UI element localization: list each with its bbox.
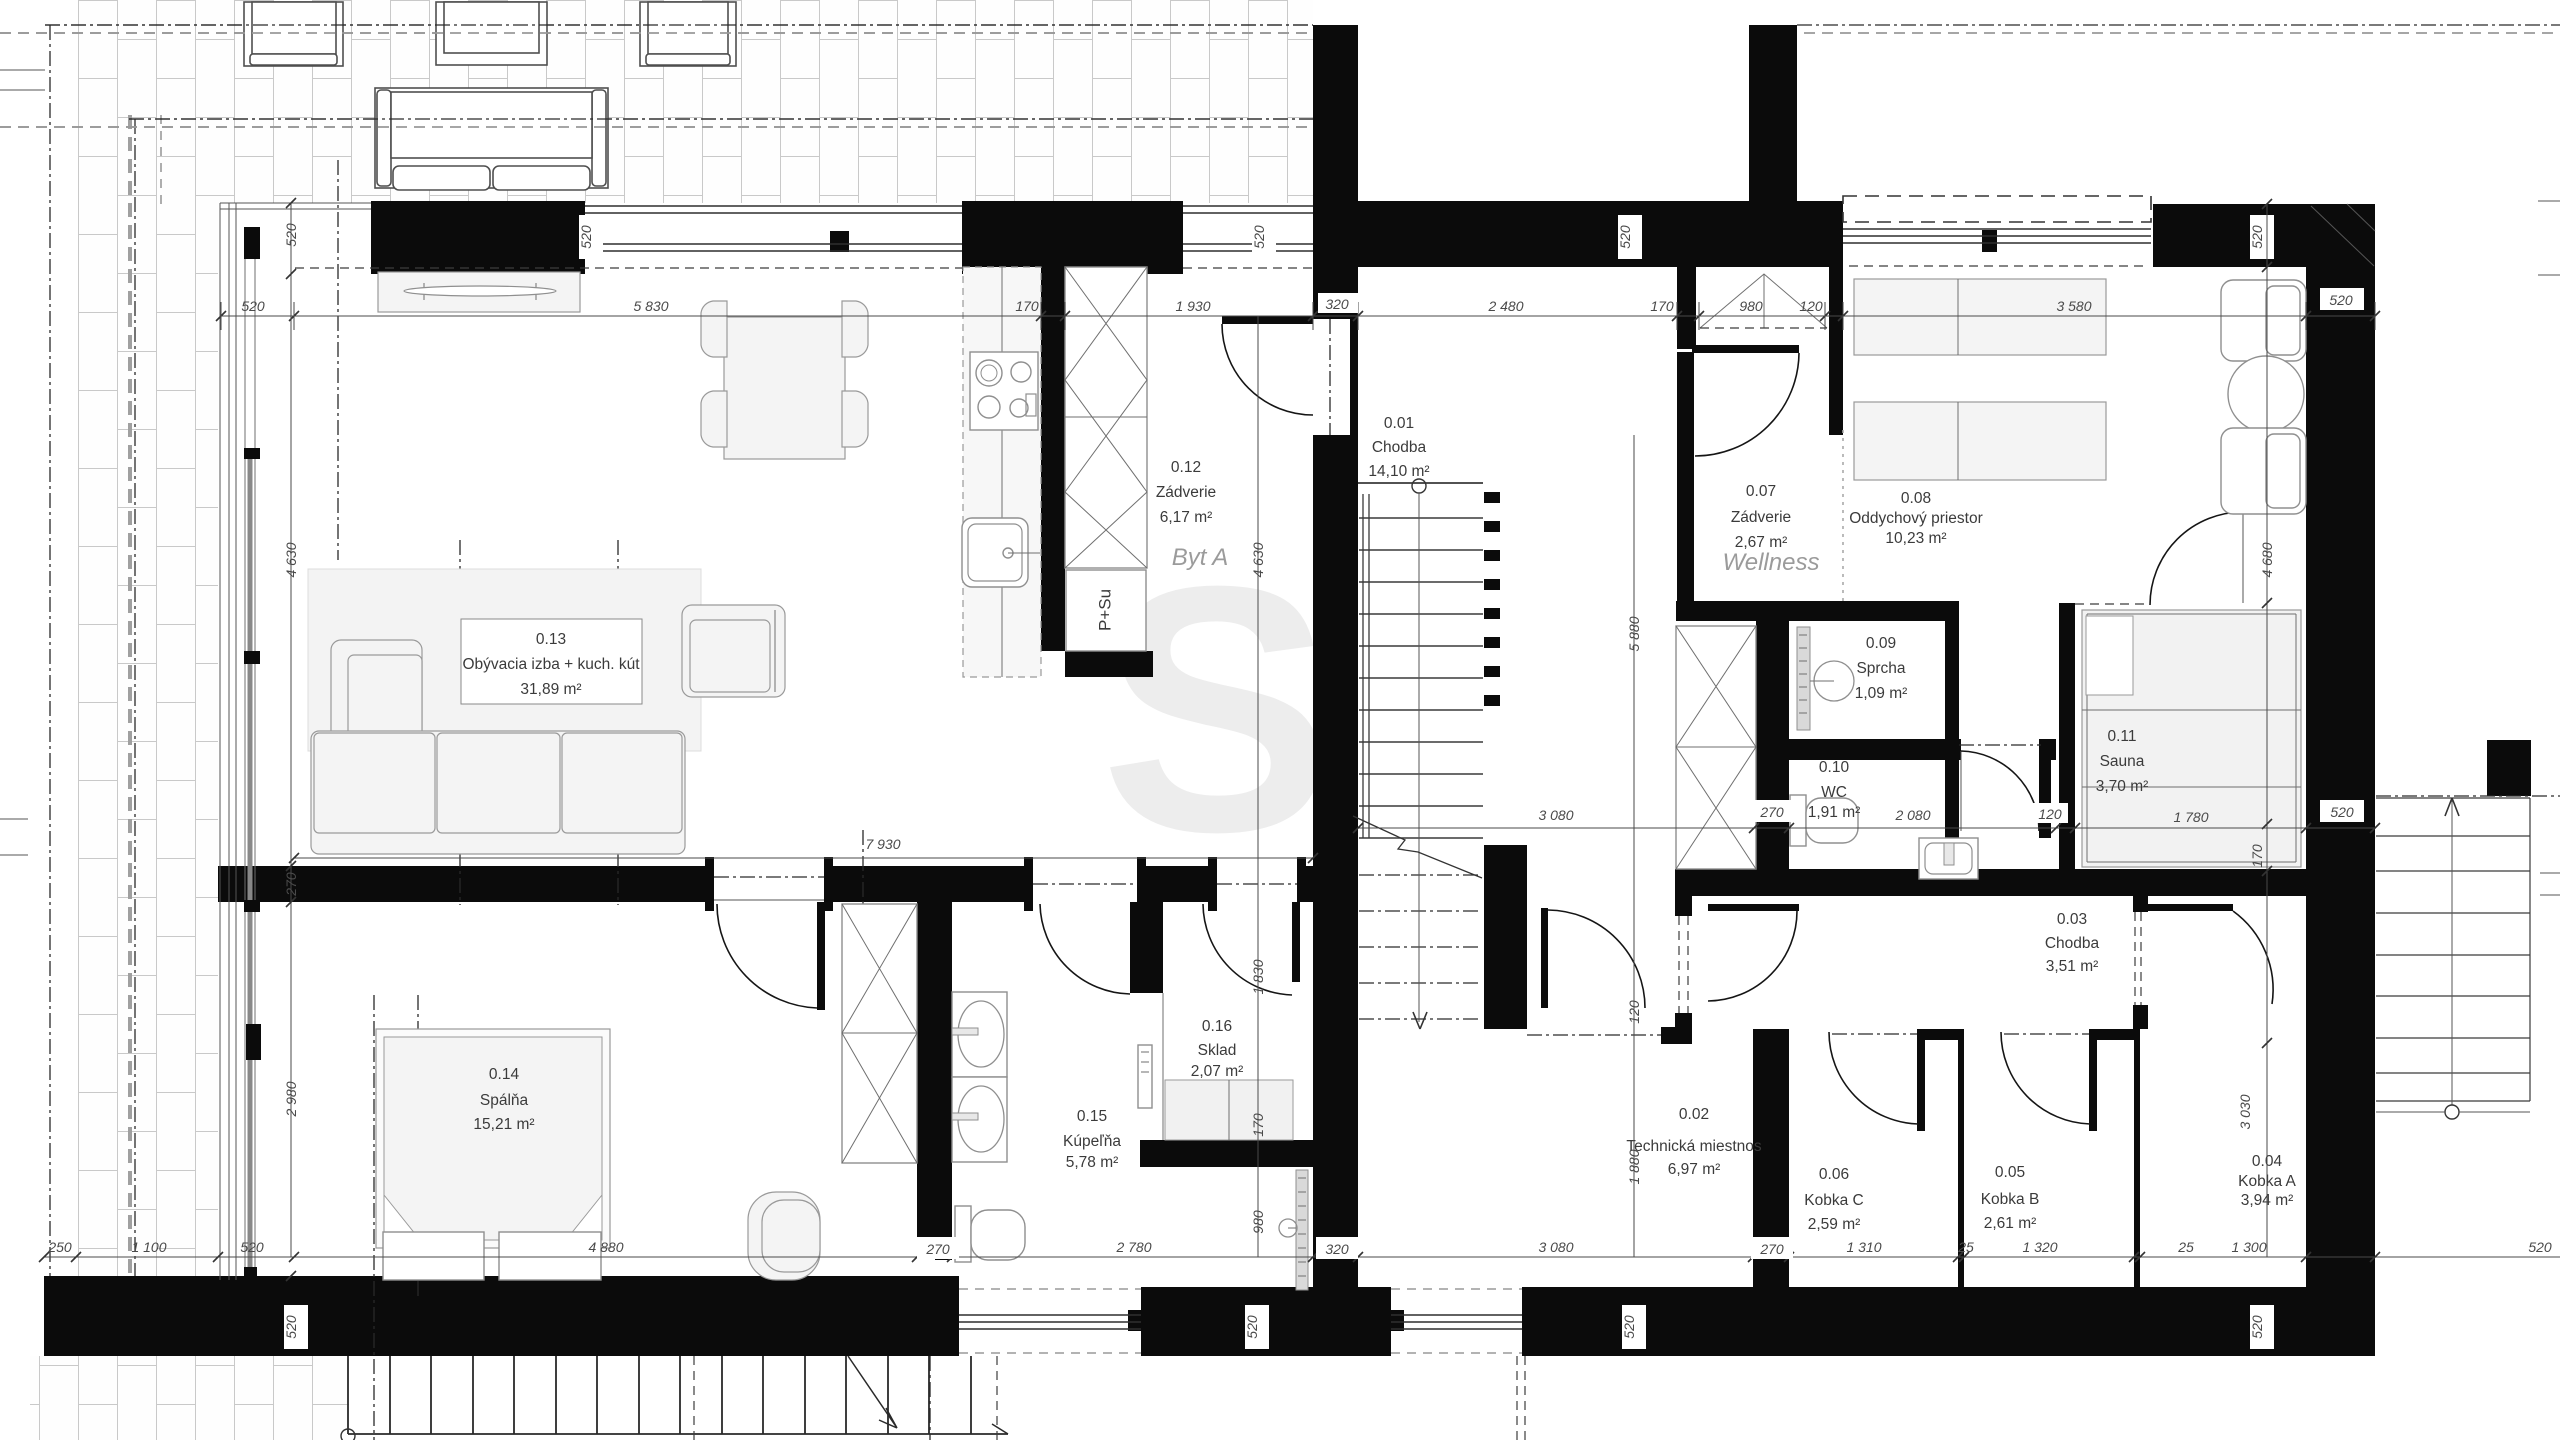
svg-text:1 880: 1 880 [1626, 1149, 1642, 1184]
svg-text:Oddychový priestor: Oddychový priestor [1849, 510, 1983, 527]
svg-text:2 780: 2 780 [1115, 1239, 1151, 1255]
svg-text:5,78 m²: 5,78 m² [1066, 1154, 1119, 1171]
svg-text:5 830: 5 830 [633, 298, 668, 314]
svg-text:270: 270 [925, 1241, 950, 1257]
svg-text:0.12: 0.12 [1171, 459, 1201, 476]
svg-text:520: 520 [1621, 1315, 1637, 1339]
svg-text:0.08: 0.08 [1901, 490, 1931, 507]
svg-text:2 080: 2 080 [1894, 807, 1930, 823]
svg-text:1 100: 1 100 [131, 1239, 166, 1255]
svg-text:170: 170 [1015, 298, 1039, 314]
svg-text:3 580: 3 580 [2056, 298, 2091, 314]
svg-text:1 930: 1 930 [1175, 298, 1210, 314]
svg-text:10,23 m²: 10,23 m² [1885, 530, 1946, 547]
svg-text:520: 520 [2249, 1315, 2265, 1339]
svg-text:P+Su: P+Su [1095, 589, 1114, 631]
svg-text:2,07 m²: 2,07 m² [1191, 1063, 1244, 1080]
svg-text:1,91 m²: 1,91 m² [1808, 804, 1861, 821]
svg-text:3 080: 3 080 [1538, 1239, 1573, 1255]
svg-text:2,67 m²: 2,67 m² [1735, 534, 1788, 551]
svg-text:Kobka B: Kobka B [1981, 1191, 2040, 1208]
svg-text:Sprcha: Sprcha [1856, 660, 1905, 677]
svg-text:270: 270 [1759, 1241, 1784, 1257]
svg-text:0.13: 0.13 [536, 631, 566, 648]
svg-text:3,70 m²: 3,70 m² [2096, 778, 2149, 795]
svg-text:1 780: 1 780 [2173, 809, 2208, 825]
svg-text:1 300: 1 300 [2231, 1239, 2266, 1255]
svg-text:170: 170 [1250, 1113, 1266, 1137]
svg-text:980: 980 [1739, 298, 1763, 314]
svg-text:0.03: 0.03 [2057, 911, 2087, 928]
svg-text:Kúpeľňa: Kúpeľňa [1063, 1133, 1121, 1150]
svg-text:7 930: 7 930 [865, 836, 900, 852]
svg-text:Chodba: Chodba [2045, 935, 2100, 952]
svg-text:14,10 m²: 14,10 m² [1368, 463, 1429, 480]
svg-text:520: 520 [2330, 804, 2354, 820]
svg-text:Technická miestnos: Technická miestnos [1626, 1138, 1762, 1155]
svg-text:4 630: 4 630 [283, 542, 299, 577]
svg-text:120: 120 [1626, 1000, 1642, 1024]
svg-text:4 880: 4 880 [588, 1239, 623, 1255]
svg-text:2 480: 2 480 [1487, 298, 1523, 314]
svg-text:Zádverie: Zádverie [1731, 509, 1791, 526]
svg-text:Sklad: Sklad [1198, 1042, 1237, 1059]
svg-text:170: 170 [2249, 844, 2265, 868]
svg-text:320: 320 [1325, 1241, 1349, 1257]
svg-text:520: 520 [2249, 225, 2265, 249]
svg-text:1,09 m²: 1,09 m² [1855, 685, 1908, 702]
svg-text:0.07: 0.07 [1746, 483, 1776, 500]
svg-text:170: 170 [1650, 298, 1674, 314]
svg-text:120: 120 [2038, 806, 2062, 822]
svg-text:120: 120 [1799, 298, 1823, 314]
svg-text:4 680: 4 680 [2259, 542, 2275, 577]
svg-text:Kobka C: Kobka C [1804, 1192, 1863, 1209]
svg-text:250: 250 [47, 1239, 72, 1255]
svg-text:2,59 m²: 2,59 m² [1808, 1216, 1861, 1233]
svg-text:1 830: 1 830 [1250, 959, 1266, 994]
svg-text:Chodba: Chodba [1372, 439, 1427, 456]
svg-text:2,61 m²: 2,61 m² [1984, 1215, 2037, 1232]
svg-text:320: 320 [1325, 296, 1349, 312]
svg-text:0.02: 0.02 [1679, 1106, 1709, 1123]
svg-text:3 030: 3 030 [2237, 1094, 2253, 1129]
svg-text:Zádverie: Zádverie [1156, 484, 1216, 501]
svg-text:520: 520 [1244, 1315, 1260, 1339]
svg-text:980: 980 [1250, 1210, 1266, 1234]
svg-text:0.11: 0.11 [2107, 728, 2136, 745]
svg-text:4 630: 4 630 [1250, 542, 1266, 577]
svg-text:3,51 m²: 3,51 m² [2046, 958, 2099, 975]
svg-text:Wellness: Wellness [1723, 549, 1820, 576]
svg-text:0.01: 0.01 [1384, 415, 1414, 432]
svg-text:520: 520 [241, 298, 265, 314]
svg-text:Obývacia izba + kuch. kút: Obývacia izba + kuch. kút [462, 656, 640, 673]
svg-text:520: 520 [1251, 225, 1267, 249]
svg-text:6,97 m²: 6,97 m² [1668, 1161, 1721, 1178]
svg-text:15,21 m²: 15,21 m² [473, 1116, 534, 1133]
svg-text:0.16: 0.16 [1202, 1018, 1232, 1035]
svg-text:25: 25 [2177, 1239, 2194, 1255]
svg-text:0.09: 0.09 [1866, 635, 1896, 652]
svg-text:0.10: 0.10 [1819, 759, 1850, 776]
svg-text:0.06: 0.06 [1819, 1166, 1849, 1183]
svg-text:520: 520 [578, 225, 594, 249]
svg-text:1 320: 1 320 [2022, 1239, 2057, 1255]
svg-text:5 880: 5 880 [1626, 616, 1642, 651]
svg-text:Sauna: Sauna [2100, 753, 2145, 770]
svg-text:3 080: 3 080 [1538, 807, 1573, 823]
svg-text:6,17 m²: 6,17 m² [1160, 509, 1213, 526]
svg-text:31,89 m²: 31,89 m² [520, 681, 581, 698]
svg-text:WC: WC [1821, 784, 1847, 801]
svg-text:520: 520 [283, 1315, 299, 1339]
svg-text:0.14: 0.14 [489, 1066, 520, 1083]
svg-text:520: 520 [283, 223, 299, 247]
svg-text:0.15: 0.15 [1077, 1108, 1107, 1125]
svg-text:270: 270 [1759, 804, 1784, 820]
svg-text:1 310: 1 310 [1846, 1239, 1881, 1255]
svg-text:520: 520 [1617, 225, 1633, 249]
svg-text:520: 520 [2528, 1239, 2552, 1255]
svg-text:Spálňa: Spálňa [480, 1092, 529, 1109]
svg-text:Byt A: Byt A [1172, 544, 1228, 571]
svg-text:520: 520 [2329, 292, 2353, 308]
svg-text:0.05: 0.05 [1995, 1164, 2025, 1181]
svg-text:520: 520 [240, 1239, 264, 1255]
svg-text:25: 25 [1957, 1239, 1974, 1255]
svg-text:270: 270 [283, 872, 299, 897]
svg-text:2 980: 2 980 [283, 1081, 299, 1117]
